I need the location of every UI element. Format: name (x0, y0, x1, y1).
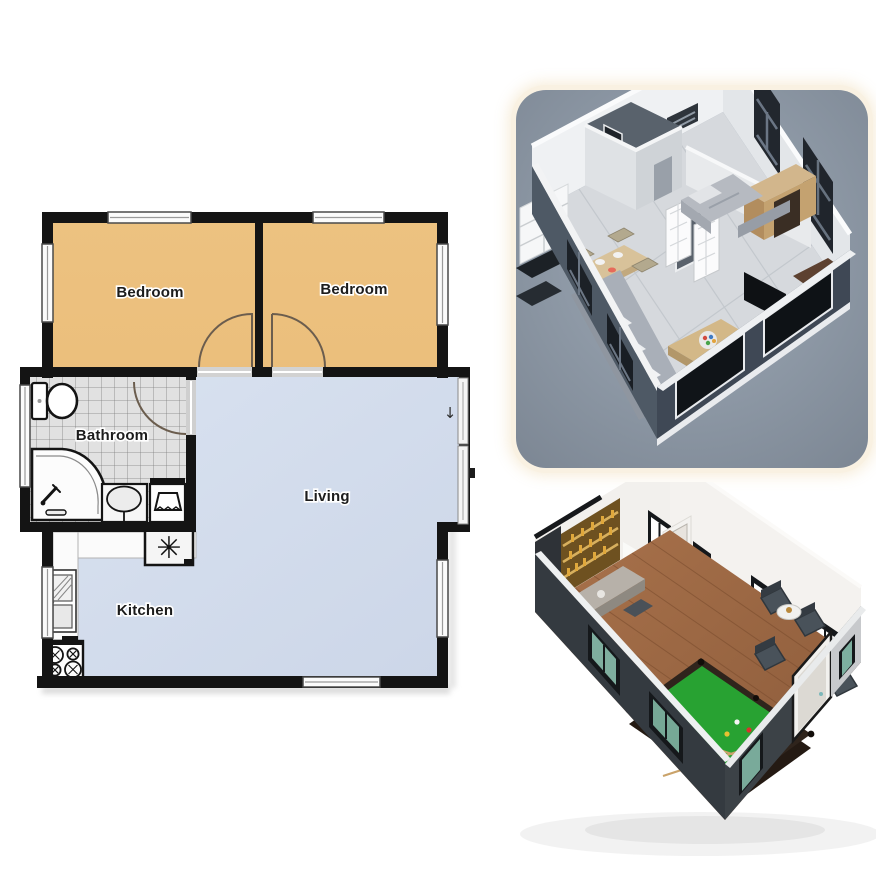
kitchen-label: Kitchen (117, 602, 173, 619)
render-3d-games-room (505, 482, 876, 872)
living-label: Living (304, 488, 349, 505)
bedroom-right-label: Bedroom (320, 281, 387, 298)
entry-arrow: ↓ (444, 404, 457, 422)
page: ✳ (0, 0, 876, 877)
floor-plan-svg: ✳ (10, 192, 480, 708)
render-3d-apartment (516, 90, 868, 468)
render-3d-apartment-svg (516, 90, 868, 468)
heater-symbol: ✳ (156, 531, 181, 566)
render-shadow-inner (585, 816, 825, 844)
bedroom-left-label: Bedroom (116, 284, 183, 301)
washing-machine-icon (150, 478, 185, 522)
toilet-icon (32, 383, 77, 419)
render-3d-games-room-svg (505, 482, 876, 872)
heater-box: ✳ (145, 530, 193, 566)
door-handle (469, 468, 475, 478)
bathroom-label: Bathroom (76, 427, 148, 444)
bathroom-sink-icon (102, 484, 147, 522)
floor-plan: ✳ (10, 192, 480, 708)
sliding-door (458, 378, 475, 524)
